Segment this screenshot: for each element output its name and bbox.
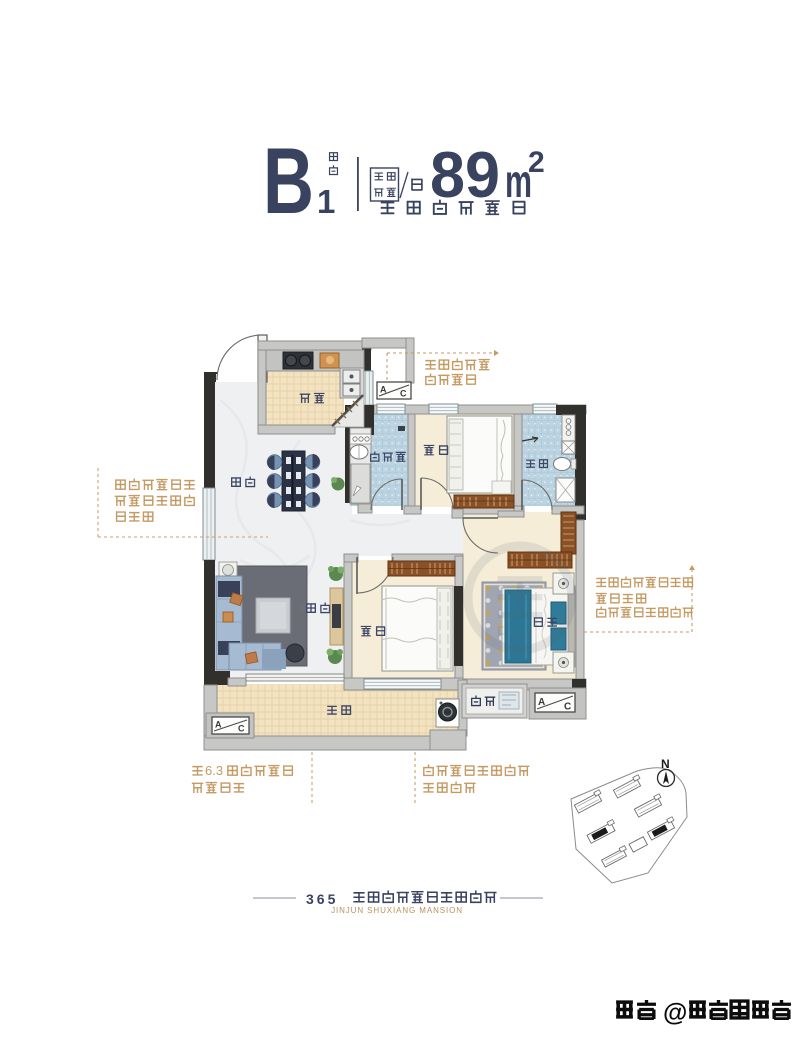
svg-text:B: B bbox=[263, 128, 314, 233]
svg-text:C: C bbox=[564, 702, 571, 713]
svg-text:C: C bbox=[400, 389, 407, 399]
svg-text:A: A bbox=[380, 385, 387, 395]
svg-text:N: N bbox=[661, 757, 670, 771]
svg-text:365: 365 bbox=[306, 891, 338, 907]
svg-text:2: 2 bbox=[528, 146, 545, 179]
svg-text:6.3: 6.3 bbox=[205, 763, 223, 778]
svg-text:@: @ bbox=[663, 999, 687, 1027]
svg-text:C: C bbox=[238, 724, 245, 734]
svg-text:Pan: Pan bbox=[496, 623, 532, 645]
svg-text:JINJUN SHUXIANG MANSION: JINJUN SHUXIANG MANSION bbox=[331, 906, 463, 915]
svg-text:1: 1 bbox=[317, 183, 335, 220]
svg-text:A: A bbox=[538, 697, 545, 708]
svg-text:A: A bbox=[215, 720, 222, 730]
